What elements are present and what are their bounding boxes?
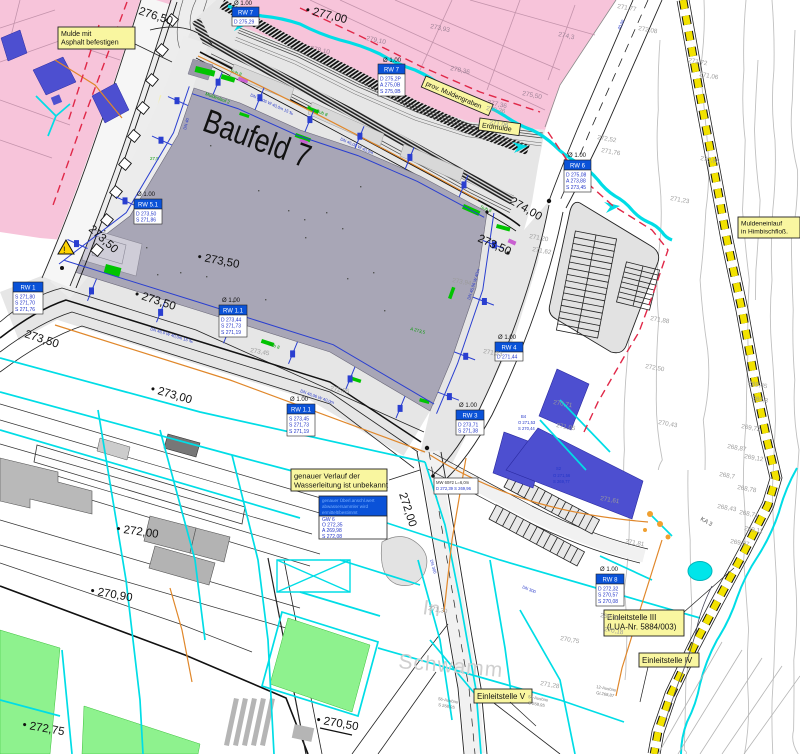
svg-text:S 271,73: S 271,73 xyxy=(289,423,309,429)
svg-text:Ø 1.00: Ø 1.00 xyxy=(600,567,619,573)
svg-text:S 271,19: S 271,19 xyxy=(221,330,241,336)
svg-text:RW 8: RW 8 xyxy=(603,578,619,584)
svg-text:D 275,29: D 275,29 xyxy=(234,20,255,26)
svg-text:S 273,45: S 273,45 xyxy=(289,417,309,423)
svg-text:abwassersammler wird: abwassersammler wird xyxy=(322,504,369,509)
svg-text:Ø 1.00: Ø 1.00 xyxy=(383,58,402,64)
svg-text:D 272,32: D 272,32 xyxy=(598,587,619,593)
svg-text:RW 1.1: RW 1.1 xyxy=(291,408,312,414)
svg-text:S2: S2 xyxy=(556,466,562,471)
svg-text:Muldeneinlauf: Muldeneinlauf xyxy=(741,221,782,228)
svg-text:A 275,0B: A 275,0B xyxy=(380,83,401,89)
svg-text:S 270,57: S 270,57 xyxy=(598,593,618,599)
svg-text:S 270,44: S 270,44 xyxy=(518,426,535,431)
svg-text:B4: B4 xyxy=(521,414,527,419)
svg-text:Ø 1.00: Ø 1.00 xyxy=(459,403,478,409)
svg-text:Einleitstelle IV: Einleitstelle IV xyxy=(642,656,693,665)
svg-text:Ø 1.00: Ø 1.00 xyxy=(222,298,241,304)
svg-text:Einleitstelle V: Einleitstelle V xyxy=(477,692,526,701)
svg-text:Ø 1.00: Ø 1.00 xyxy=(568,153,587,159)
svg-text:RW 1.1: RW 1.1 xyxy=(223,309,244,315)
svg-text:in Himbischfloß.: in Himbischfloß. xyxy=(741,229,788,236)
svg-text:S 271,38: S 271,38 xyxy=(458,429,478,435)
svg-text:RW 5.1: RW 5.1 xyxy=(138,203,159,209)
svg-text:Wasserleitung ist unbekannt: Wasserleitung ist unbekannt xyxy=(294,481,389,490)
svg-text:O 271,53: O 271,53 xyxy=(518,420,536,425)
svg-text:RW 4: RW 4 xyxy=(502,346,518,352)
svg-text:RW 6: RW 6 xyxy=(570,164,586,170)
svg-text:Mulde mit: Mulde mit xyxy=(61,31,91,38)
svg-text:S 271,86: S 271,86 xyxy=(136,218,156,224)
svg-text:S 271,80: S 271,80 xyxy=(15,295,35,301)
svg-text:genauer Verlauf der: genauer Verlauf der xyxy=(294,472,360,481)
svg-text:D 275,08: D 275,08 xyxy=(566,173,587,179)
svg-text:D 273,71: D 273,71 xyxy=(458,423,479,429)
svg-text:RW 7: RW 7 xyxy=(384,68,400,74)
svg-text:D 272,39 S 269,96: D 272,39 S 269,96 xyxy=(436,486,472,491)
svg-text:S 270,08: S 270,08 xyxy=(598,599,618,605)
svg-text:RW 7: RW 7 xyxy=(238,11,254,17)
svg-text:genauer Überl.anschl.wert: genauer Überl.anschl.wert xyxy=(322,497,375,503)
svg-text:D 273,44: D 273,44 xyxy=(221,318,242,324)
svg-text:ermittelt/bestimmt: ermittelt/bestimmt xyxy=(322,510,358,515)
svg-text:!: ! xyxy=(63,245,66,255)
svg-text:RW 3: RW 3 xyxy=(463,414,479,420)
svg-text:D 273,50: D 273,50 xyxy=(136,212,157,218)
svg-text:Ø 1.00: Ø 1.00 xyxy=(234,1,253,7)
svg-text:A 273,88: A 273,88 xyxy=(566,179,586,185)
svg-text:RW 1: RW 1 xyxy=(21,286,37,292)
svg-text:S 269,77: S 269,77 xyxy=(553,479,570,484)
svg-text:D 275,2P: D 275,2P xyxy=(380,77,402,83)
svg-text:S 271,76: S 271,76 xyxy=(15,307,35,313)
svg-text:O 271,56: O 271,56 xyxy=(553,473,571,478)
svg-text:MW 60#2 L=6,0m: MW 60#2 L=6,0m xyxy=(436,480,470,485)
svg-text:S 272,08: S 272,08 xyxy=(322,534,342,540)
svg-text:Ø 1.00: Ø 1.00 xyxy=(290,397,309,403)
svg-text:S 275,0B: S 275,0B xyxy=(380,89,401,95)
svg-text:S 271,73: S 271,73 xyxy=(221,324,241,330)
svg-text:S 271,70: S 271,70 xyxy=(15,301,35,307)
svg-text:S 271,19: S 271,19 xyxy=(289,429,309,435)
svg-text:Asphalt befestigen: Asphalt befestigen xyxy=(61,40,119,47)
svg-text:Ø 1.00: Ø 1.00 xyxy=(137,192,156,198)
svg-text:S 273,45: S 273,45 xyxy=(566,185,586,191)
svg-text:Ø 1.00: Ø 1.00 xyxy=(498,335,517,341)
